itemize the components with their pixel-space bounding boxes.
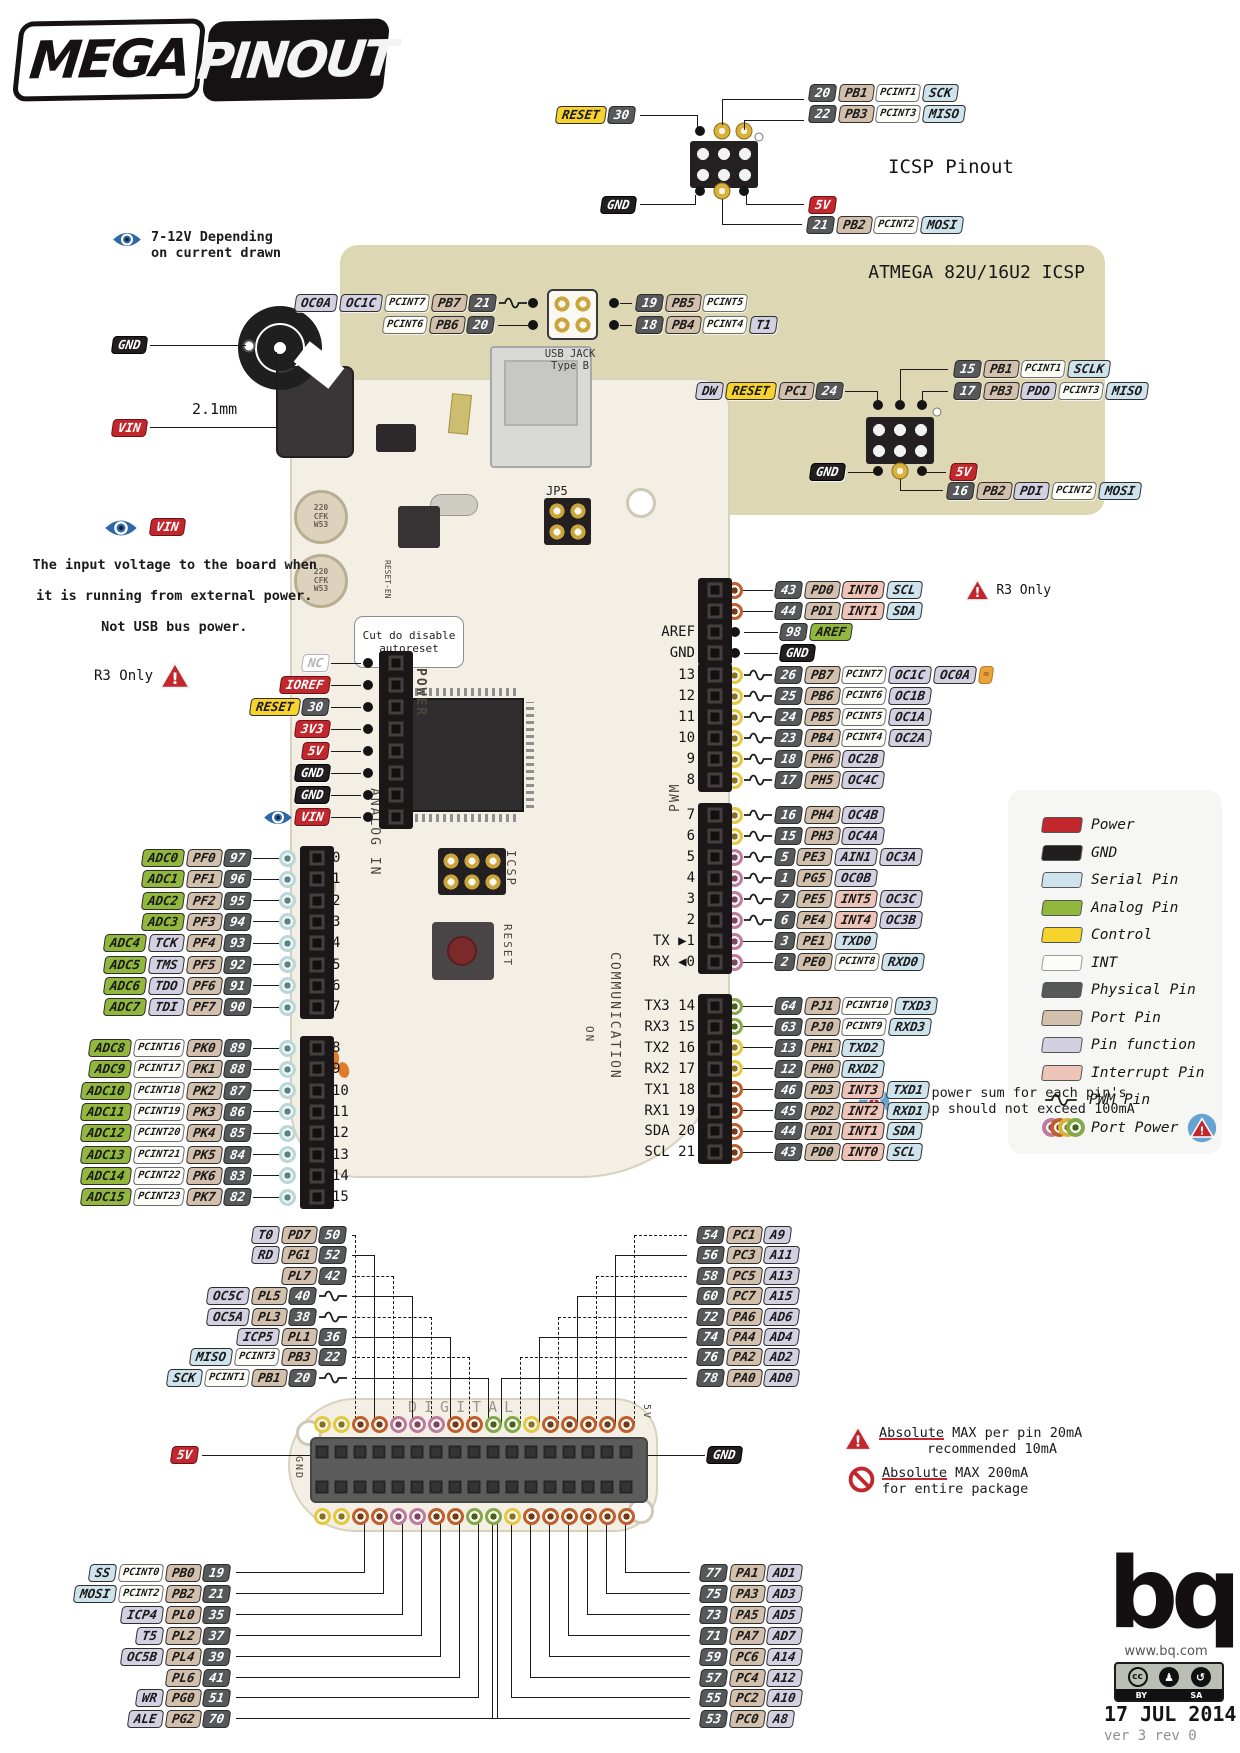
- pin-badge: PC0: [728, 1710, 765, 1728]
- pin-badge: PE0: [796, 953, 833, 971]
- pin-pad: [506, 1481, 519, 1494]
- pin-badge: PK4: [186, 1124, 223, 1142]
- pin-badge: 95: [223, 892, 253, 910]
- pin-row: 63PJ0PCINT9RXD3: [726, 1018, 933, 1036]
- pin-badge: 3: [773, 932, 795, 950]
- pin-badge: GND: [600, 196, 637, 214]
- icsp-header: [866, 417, 934, 464]
- pin-badge: VIN: [148, 518, 185, 536]
- pin-badge: PH3: [803, 827, 840, 845]
- connection-line: [352, 1235, 356, 1424]
- legend-item: INT: [1042, 954, 1222, 972]
- pin-badge: TXD0: [833, 932, 878, 950]
- connection-line: [744, 120, 804, 130]
- pin-badge: RESET: [725, 382, 777, 400]
- pin-row: 5V: [170, 1446, 200, 1464]
- cc-license-types: BY SA: [1114, 1691, 1224, 1700]
- header-pin: [694, 166, 712, 184]
- port-power-dot: [447, 1416, 464, 1433]
- connection-line: [331, 751, 361, 752]
- icsp-pinout-title: ICSP Pinout: [888, 156, 1014, 178]
- pin-row: 19PB5PCINT5: [634, 294, 749, 312]
- header-pin: [891, 442, 909, 460]
- header-pin: [553, 295, 571, 313]
- board-pin-label: 6: [687, 828, 695, 844]
- pin-badge: PB3: [837, 105, 874, 123]
- pin-row: GND: [110, 336, 148, 354]
- warning-triangle-icon: !: [965, 579, 990, 601]
- header-pin: [553, 316, 571, 334]
- pin-badge: 19: [202, 1564, 232, 1582]
- legend-swatch: [1041, 1065, 1083, 1081]
- board-pin-label: 10: [678, 730, 695, 746]
- connection-line: [253, 964, 279, 965]
- board-pin-label: 2: [687, 912, 695, 928]
- pin-row: 44PD1INT1SDA: [726, 1122, 923, 1140]
- jack-voltage-note: 7-12V Dependingon current drawn: [112, 230, 281, 261]
- pin-badge: 1: [773, 869, 795, 887]
- pin-pad: [708, 752, 723, 767]
- pin-pad: [708, 625, 723, 640]
- legend-swatch: [1041, 927, 1083, 943]
- pin-row: ICP5PL136: [235, 1328, 348, 1346]
- pin-badge: PCINT16: [132, 1039, 185, 1057]
- header-pin: [736, 166, 754, 184]
- pin-badge: PB5: [803, 708, 840, 726]
- pin-pad: [310, 893, 325, 908]
- r3-only-label: R3 Only: [996, 583, 1051, 598]
- pin-row: 43PD0INT0SCL: [726, 1143, 923, 1161]
- footer-version: ver 3 rev 0: [1104, 1728, 1197, 1744]
- r3-only-note-left: R3 Only !: [94, 662, 190, 689]
- pin-badge: PK2: [186, 1082, 223, 1100]
- header-pin: [442, 852, 460, 870]
- pin-badge: OC0A: [933, 666, 978, 684]
- pin-badge: PL2: [165, 1627, 202, 1645]
- pin-badge: A9: [763, 1226, 793, 1244]
- pin-badge: T5: [135, 1627, 165, 1645]
- pin-badge: 84: [223, 1146, 253, 1164]
- pwm-squiggle-icon: [318, 1309, 348, 1325]
- pin-badge: PC5: [725, 1267, 762, 1285]
- pin-pad: [449, 1481, 462, 1494]
- header-pin: [548, 523, 566, 541]
- pin-pad: [708, 955, 723, 970]
- pin-badge: GND: [294, 764, 331, 782]
- pin-badge: ADC12: [80, 1124, 132, 1142]
- port-power-dot: [279, 913, 296, 930]
- pin-row: 5V: [301, 742, 375, 760]
- pin-badge: PDI: [1013, 482, 1050, 500]
- icsp-header: [544, 498, 591, 545]
- pin-badge: PK7: [186, 1188, 223, 1206]
- header-pin: [912, 421, 930, 439]
- pwm-squiggle-icon: [743, 667, 773, 683]
- board-label-reset: RESET: [501, 924, 514, 967]
- pkg-rest: MAX 200mA: [947, 1465, 1028, 1481]
- header-pin: [715, 145, 733, 163]
- connection-line: [743, 1131, 773, 1132]
- pin-badge: RXD1: [886, 1102, 931, 1120]
- connection-line: [743, 1068, 773, 1069]
- pin-badge: PB4: [664, 316, 701, 334]
- pin-row: ICP4PL035: [119, 1606, 232, 1624]
- pin-row: 13PH1TXD2: [726, 1039, 886, 1057]
- pin-row: 53PC0A8: [698, 1710, 796, 1728]
- pin-row: PCINT6PB620: [381, 316, 496, 334]
- pin-badge: 54: [695, 1226, 725, 1244]
- eye-icon: [263, 808, 293, 827]
- pin-badge: PD1: [803, 602, 840, 620]
- pin-badge: PCINT2: [1050, 482, 1097, 500]
- footer-date: 17 JUL 2014: [1104, 1702, 1236, 1726]
- pin-badge: PC7: [725, 1287, 762, 1305]
- pin-badge: AD2: [763, 1348, 800, 1366]
- pin-badge: PE4: [796, 911, 833, 929]
- pin-badge: PD1: [803, 1122, 840, 1140]
- pin-badge: NC: [301, 654, 331, 672]
- icsp-header: [438, 848, 506, 895]
- capacitor-1: 220CFKW53: [294, 490, 348, 544]
- bq-website: www.bq.com: [1108, 1644, 1224, 1659]
- pin-badge: PC2: [728, 1689, 765, 1707]
- pin-pad: [316, 1481, 329, 1494]
- pin-badge: ADC15: [80, 1188, 132, 1206]
- port-power-dot: [561, 1508, 578, 1525]
- pin-dot: [873, 466, 883, 476]
- port-power-dot: [279, 1125, 296, 1142]
- pin-badge: 52: [318, 1246, 348, 1264]
- cc-sa-label: SA: [1190, 1691, 1202, 1700]
- pin-badge: PCINT5: [702, 294, 749, 312]
- connection-line: [331, 685, 361, 686]
- pin-badge: T1: [749, 316, 779, 334]
- pin-pad: [392, 1446, 405, 1459]
- pin-badge: SS: [87, 1564, 117, 1582]
- pin-badge: ADC6: [103, 977, 148, 995]
- port-power-dot: [279, 1040, 296, 1057]
- header-pin: [442, 873, 460, 891]
- header-pin: [569, 523, 587, 541]
- pin-badge: PH1: [803, 1039, 840, 1057]
- power-sum-line2: group should not exceed 100mA: [899, 1101, 1135, 1117]
- port-power-dot: [542, 1508, 559, 1525]
- connection-line: [253, 879, 279, 880]
- pin-badge: PJ0: [803, 1018, 840, 1036]
- connection-line: [253, 921, 279, 922]
- pin-badge: 12: [773, 1060, 803, 1078]
- legend-swatch: [1041, 1010, 1083, 1026]
- pin-badge: 72: [695, 1308, 725, 1326]
- pin-badge: SDA: [886, 602, 923, 620]
- pin-badge: 73: [698, 1606, 728, 1624]
- pin-row: 5V: [807, 196, 837, 214]
- usb-jack-label: USB JACK Type B: [520, 348, 620, 372]
- pin-badge: RESET: [249, 698, 301, 716]
- pin-row: GND: [726, 644, 816, 662]
- pin-pad: [708, 999, 723, 1014]
- capacitor-label: W53: [314, 521, 328, 530]
- pin-pad: [708, 871, 723, 886]
- legend-label: Pin function: [1091, 1037, 1196, 1053]
- pin-badge: 24: [773, 708, 803, 726]
- legend-swatch: [1041, 1037, 1083, 1053]
- pin-pad: [310, 1168, 325, 1183]
- port-power-dot: [279, 1167, 296, 1184]
- pin-pad: [708, 668, 723, 683]
- pin-row: ADC0PF097: [140, 849, 296, 867]
- header-pin: [484, 852, 502, 870]
- port-power-dot: [279, 1146, 296, 1163]
- pin-pad: [354, 1446, 367, 1459]
- pin-pad: [310, 1104, 325, 1119]
- pin-badge: PL0: [165, 1606, 202, 1624]
- pin-row: 15PB1PCINT1SCLK: [952, 360, 1112, 378]
- connection-line: [568, 1516, 690, 1636]
- pin-row: 2PE0PCINT8RXD0: [726, 953, 925, 971]
- pin-badge: PL6: [165, 1669, 202, 1687]
- pin-row: 17PH5OC4C: [726, 771, 886, 789]
- pin-badge: PB7: [803, 666, 840, 684]
- pin-badge: RESET: [555, 106, 607, 124]
- legend-label: Interrupt Pin: [1091, 1065, 1205, 1081]
- pwm-squiggle-icon: [743, 688, 773, 704]
- port-power-dot: [279, 999, 296, 1016]
- pin-dot: [695, 186, 705, 196]
- pin-row: 16PH4OC4B: [726, 806, 886, 824]
- pin-badge: PCINT2: [117, 1585, 164, 1603]
- pin-badge: 37: [202, 1627, 232, 1645]
- connection-line: [253, 1111, 279, 1112]
- port-power-dot: [504, 1508, 521, 1525]
- pin-badge: 21: [805, 216, 835, 234]
- mega-pinout-diagram: MEGA PINOUT ATMEGA 82U/16U2 ICSP USB JAC…: [0, 0, 1240, 1753]
- pin-badge: ADC9: [87, 1060, 132, 1078]
- pin-badge: PA3: [728, 1585, 765, 1603]
- pin-badge: 20: [466, 316, 496, 334]
- pin-badge: PB1: [837, 84, 874, 102]
- pin-badge: MOSI: [72, 1585, 117, 1603]
- pin-badge: PJ1: [803, 997, 840, 1015]
- connection-line: [549, 1516, 690, 1657]
- cc-icon: cc: [1128, 1667, 1148, 1687]
- pin-badge: 50: [318, 1226, 348, 1244]
- pin-badge: 16: [945, 482, 975, 500]
- pin-pad: [430, 1481, 443, 1494]
- pin-badge: 15: [952, 360, 982, 378]
- pin-badge: PC4: [728, 1669, 765, 1687]
- pin-badge: 18: [634, 316, 664, 334]
- pin-dot: [363, 812, 373, 822]
- connection-line: [236, 1516, 422, 1636]
- pin-pad: [708, 1061, 723, 1076]
- board-pin-label: 11: [332, 1104, 349, 1120]
- pin-pad: [506, 1446, 519, 1459]
- pin-badge: PA0: [725, 1369, 762, 1387]
- pin-badge: PCINT2: [873, 216, 920, 234]
- blue-warning-icon: !: [1187, 1113, 1217, 1143]
- pin-badge: PB3: [281, 1348, 318, 1366]
- board-label-reset-en: RESET-EN: [383, 560, 392, 599]
- fuse-component: [448, 393, 472, 435]
- pin-badge: PH5: [803, 771, 840, 789]
- pin-badge: ADC5: [103, 956, 148, 974]
- pin-row: VIN: [110, 419, 148, 437]
- reset-button-cap[interactable]: [447, 936, 477, 966]
- usb-jack-label-line1: USB JACK: [520, 348, 620, 360]
- pin-pad: [310, 1062, 325, 1077]
- pin-pad: [389, 700, 404, 715]
- board-label-pwm: PWM: [668, 783, 683, 812]
- pin-pad: [487, 1446, 500, 1459]
- pin-badge: PB2: [165, 1585, 202, 1603]
- pin-badge: 36: [318, 1328, 348, 1346]
- port-power-dot: [409, 1508, 426, 1525]
- pin-badge: 40: [288, 1287, 318, 1305]
- port-power-dot: [485, 1416, 502, 1433]
- pin-badge: OC1C: [888, 666, 933, 684]
- pin-badge: PB4: [803, 729, 840, 747]
- pin-badge: 5V: [807, 196, 837, 214]
- pin-pad: [708, 1019, 723, 1034]
- pin-badge: 92: [223, 956, 253, 974]
- pin-row: 43PD0INT0SCL!R3 Only: [726, 581, 1051, 599]
- connection-line: [331, 729, 361, 730]
- pin-badge: 5V: [170, 1446, 200, 1464]
- legend-label: GND: [1091, 845, 1117, 861]
- pin-badge: MOSI: [1098, 482, 1143, 500]
- legend-item: Port Pin: [1042, 1009, 1222, 1027]
- pin-badge: VIN: [294, 808, 331, 826]
- pin-row: 75PA3AD3: [698, 1585, 803, 1603]
- logo-pinout: PINOUT: [202, 18, 391, 101]
- pwm-squiggle-icon: [743, 772, 773, 788]
- pin-badge: OC4A: [841, 827, 886, 845]
- usb-chip: [398, 506, 440, 548]
- port-power-dot: [390, 1416, 407, 1433]
- board-label-icsp: ICSP: [504, 850, 518, 887]
- pin-row: 17PB3PDOPCINT3MISO: [952, 382, 1149, 400]
- pin-pad: [563, 1446, 576, 1459]
- pin-badge: PK3: [186, 1103, 223, 1121]
- pin-badge: 26: [773, 666, 803, 684]
- pin-badge: OC1C: [338, 294, 383, 312]
- pin-pad: [310, 872, 325, 887]
- board-pin-label: 13: [332, 1147, 349, 1163]
- pin-badge: 22: [807, 105, 837, 123]
- pin-pad: [708, 850, 723, 865]
- pin-badge: PCINT22: [132, 1167, 185, 1185]
- board-pin-label: 4: [687, 870, 695, 886]
- pin-badge: OC0A: [293, 294, 338, 312]
- pwm-squiggle-icon: [743, 891, 773, 907]
- connection-line: [640, 115, 698, 131]
- pin-badge: PB5: [664, 294, 701, 312]
- pin-dot: [363, 790, 373, 800]
- pin-badge: SCK: [922, 84, 959, 102]
- connection-line: [743, 1047, 773, 1048]
- pin-badge: PB6: [429, 316, 466, 334]
- pin-badge: PCINT17: [132, 1060, 185, 1078]
- pin-badge: PCINT1: [875, 84, 922, 102]
- legend-item: Pin function: [1042, 1036, 1222, 1054]
- pin-row: ADC6TDOPF691: [103, 977, 296, 995]
- logo-mega-text: MEGA: [27, 29, 192, 92]
- connection-line: [253, 1090, 279, 1091]
- pin-badge: 88: [223, 1060, 253, 1078]
- connection-line: [743, 962, 773, 963]
- pin-pad: [449, 1446, 462, 1459]
- legend-label: INT: [1091, 955, 1117, 971]
- jack-diameter-label: 2.1mm: [192, 400, 237, 418]
- usb-jack-label-line2: Type B: [520, 360, 620, 372]
- pin-badge: MISO: [922, 105, 967, 123]
- pin-badge: AREF: [808, 623, 853, 641]
- pin-badge: PG0: [165, 1689, 202, 1707]
- pin-badge: PK0: [186, 1039, 223, 1057]
- pin-badge: OC3C: [878, 890, 923, 908]
- board-pin-label: SDA 20: [644, 1123, 695, 1139]
- pin-pad: [310, 936, 325, 951]
- vin-note-line3: Not USB bus power.: [101, 619, 247, 635]
- pin-row: 7PE5INT5OC3C: [726, 890, 923, 908]
- pin-badge: 74: [695, 1328, 725, 1346]
- pin-row: ALEPG270: [127, 1710, 232, 1728]
- connection-line: [253, 900, 279, 901]
- pin-badge: INT3: [841, 1081, 886, 1099]
- pin-pad: [310, 957, 325, 972]
- pin-row: VIN: [148, 518, 186, 536]
- pin-pad: [310, 1126, 325, 1141]
- pin-badge: A12: [766, 1669, 803, 1687]
- connection-line: [253, 1154, 279, 1155]
- legend-label: Port Power: [1091, 1120, 1178, 1136]
- pin-badge: WR: [135, 1689, 165, 1707]
- pin-row: 18PH6OC2B: [726, 750, 886, 768]
- pin-row: ADC2PF295: [140, 892, 296, 910]
- board-label-jp5: JP5: [546, 484, 568, 498]
- pin-dot: [609, 320, 619, 330]
- board-pin-label: 7: [687, 807, 695, 823]
- pin-row: IOREF: [278, 676, 375, 694]
- pin-pad: [620, 1481, 633, 1494]
- pwm-squiggle-icon: [318, 1370, 348, 1386]
- pin-badge: PCINT0: [117, 1564, 164, 1582]
- board-pin-label: SCL 21: [644, 1144, 695, 1160]
- port-power-dot: [279, 1103, 296, 1120]
- pin-badge: MOSI: [920, 216, 965, 234]
- pin-badge: PK1: [186, 1060, 223, 1078]
- pin-row: ADC15PCINT23PK782: [80, 1188, 296, 1206]
- pin-badge: GND: [778, 644, 815, 662]
- pin-badge: OC2B: [841, 750, 886, 768]
- pin-badge: 87: [223, 1082, 253, 1100]
- port-power-dot: [428, 1416, 445, 1433]
- port-power-dot: [279, 1082, 296, 1099]
- pin-badge: 21: [468, 294, 498, 312]
- board-pin-label: 8: [687, 772, 695, 788]
- pin-dot: [739, 186, 749, 196]
- pin-row: SCKPCINT1PB120: [166, 1369, 348, 1387]
- pin-pad: [525, 1446, 538, 1459]
- pin-badge: OC5C: [205, 1287, 250, 1305]
- port-power-dot: [279, 1189, 296, 1206]
- port-power-dot: [333, 1416, 350, 1433]
- legend-swatch: [1041, 872, 1083, 888]
- pin-badge: PA1: [728, 1564, 765, 1582]
- pin-badge: PD3: [803, 1081, 840, 1099]
- pin-badge: 82: [223, 1188, 253, 1206]
